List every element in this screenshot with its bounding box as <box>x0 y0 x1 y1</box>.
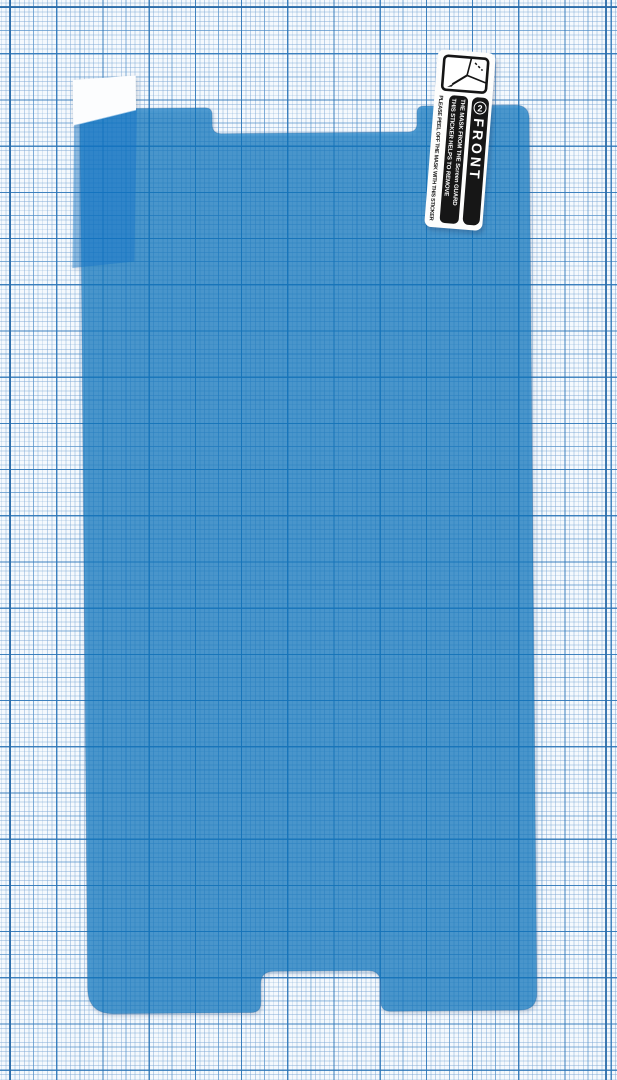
front-label: FRONT <box>466 118 487 182</box>
film-shape <box>80 105 537 1014</box>
pull-tab-blue <box>71 109 138 268</box>
screen-protector-film <box>0 0 617 1080</box>
peel-corner-icon <box>440 53 491 95</box>
circled-2-badge: 2 <box>473 101 487 115</box>
product-photo-scene: PLEASE PEEL OFF THE MASK WITH THIS STICK… <box>0 0 617 1080</box>
